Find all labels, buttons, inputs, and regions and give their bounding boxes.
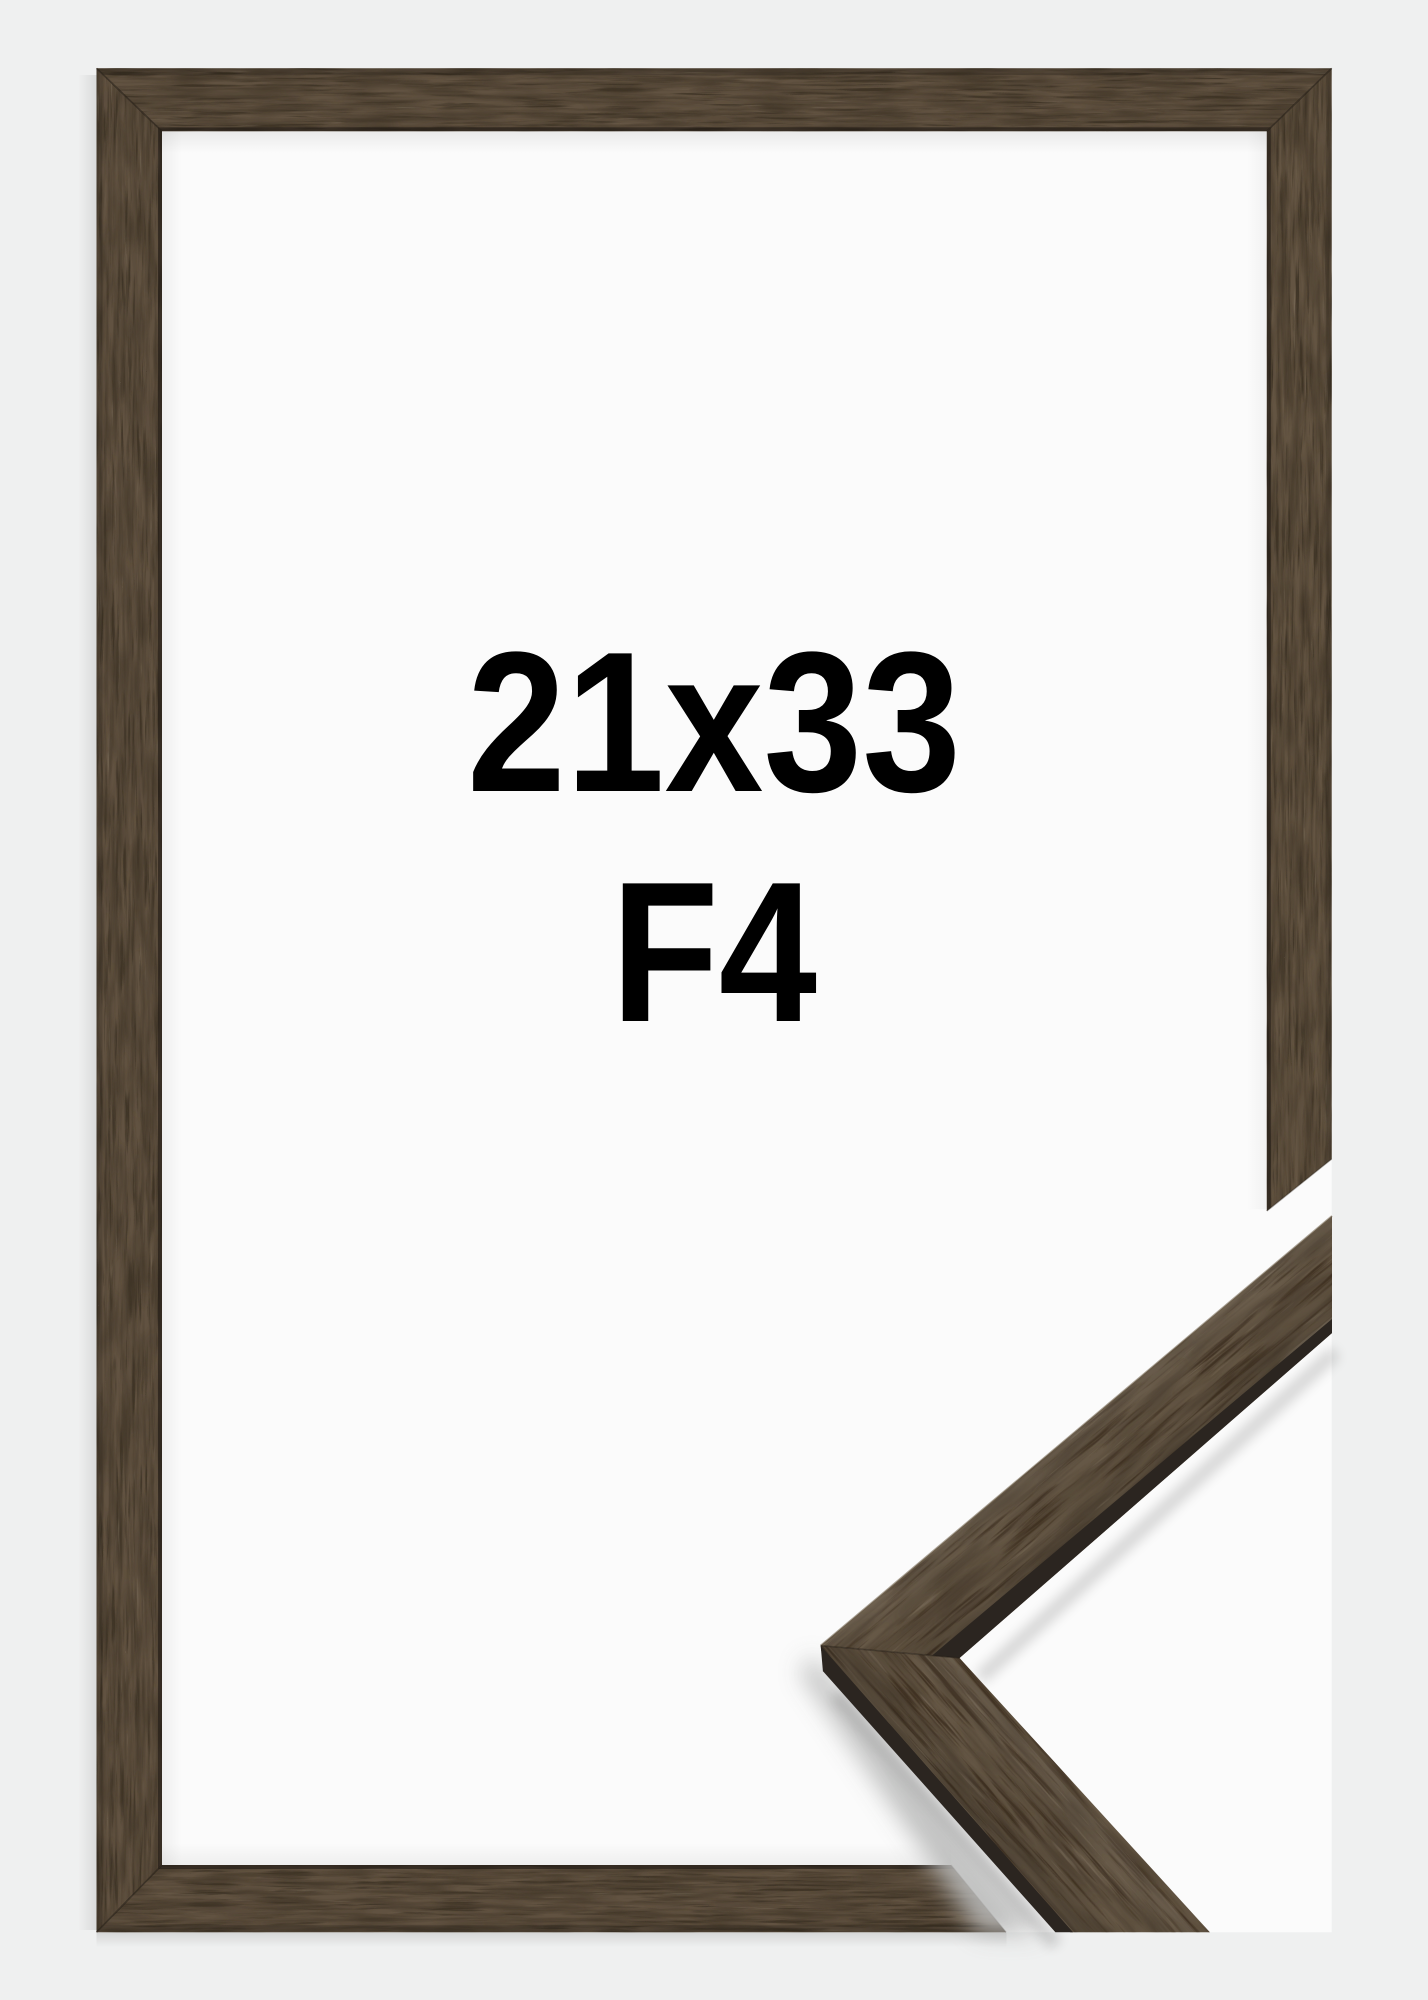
svg-text:21x33: 21x33 [467,611,961,834]
svg-text:F4: F4 [611,841,817,1064]
